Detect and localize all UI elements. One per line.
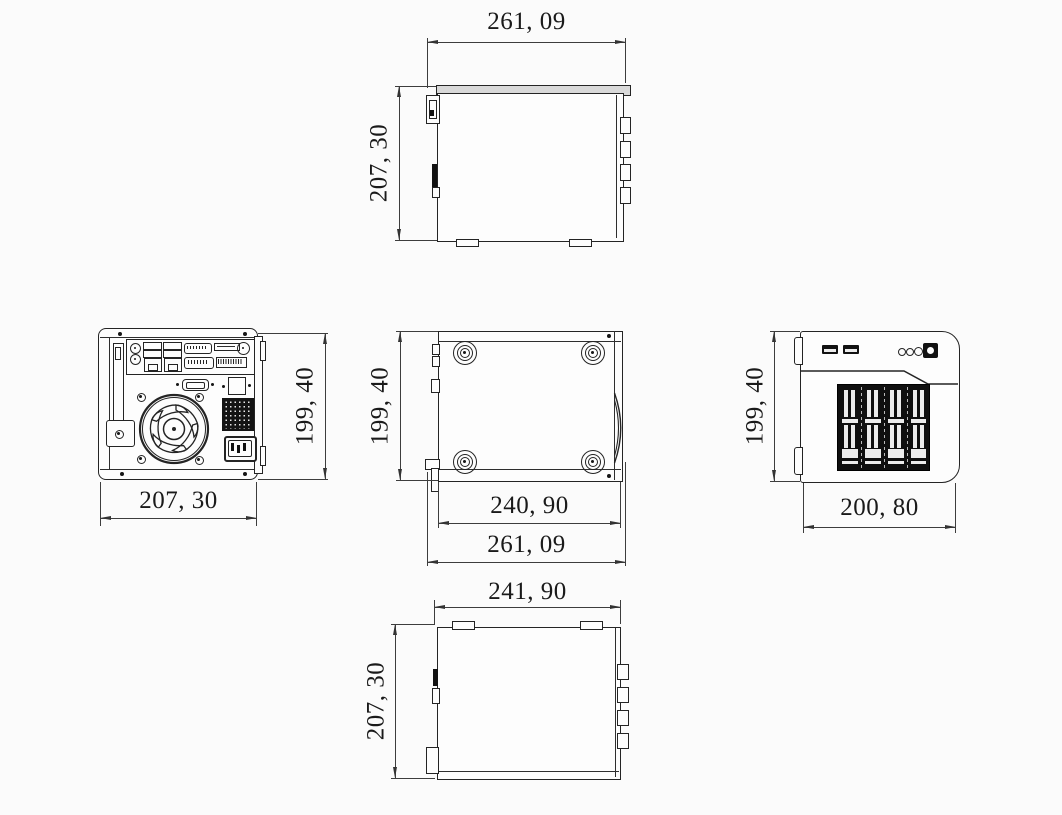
tray-latch [888, 461, 904, 464]
rear-connector-bump [431, 379, 440, 393]
panel-fold-line [109, 337, 110, 470]
power-button-symbol [927, 347, 934, 354]
usb-port [143, 342, 162, 350]
side-connector [433, 669, 438, 686]
arrowhead [803, 525, 814, 529]
tray-divider [865, 419, 881, 423]
tray-separator [884, 387, 885, 468]
dim-label-side-bottom-width: 241, 90 [434, 578, 621, 607]
extension-line [434, 600, 435, 624]
tray-vent-slot [851, 425, 855, 448]
front-bezel-line [616, 95, 617, 238]
extension-line [391, 778, 435, 779]
dim-label-side-top-width: 261, 09 [427, 8, 626, 37]
panel-fold-line [100, 337, 254, 338]
tray-vent-slot [844, 390, 848, 417]
dim-label-side-top-height: 207, 30 [366, 124, 395, 203]
dim-label-front-height: 199, 40 [742, 367, 771, 446]
tray-latch-bump [617, 687, 629, 703]
arrowhead [427, 40, 438, 44]
screw-hole [176, 383, 179, 386]
dimension-line [400, 331, 401, 480]
usb-port [163, 350, 182, 358]
tray-handle[interactable] [842, 449, 858, 458]
dimension-line [434, 607, 621, 608]
extension-line [625, 462, 626, 566]
ac-pin [243, 443, 246, 451]
extension-line [620, 600, 621, 624]
fan-screw [137, 393, 144, 400]
system-fan [138, 393, 210, 465]
arrowhead [610, 521, 621, 525]
tray-latch-bump [620, 187, 631, 204]
front-door-curve [613, 392, 629, 464]
extension-line [427, 472, 428, 566]
extension-line [258, 333, 328, 334]
rear-connector-bump [432, 356, 440, 367]
extension-line [396, 331, 438, 332]
drive-tray[interactable] [909, 387, 928, 468]
dim-label-front-width: 200, 80 [803, 494, 956, 523]
dimension-line [803, 527, 956, 528]
lan-port-tab [168, 364, 178, 371]
arrowhead [434, 605, 445, 609]
arrowhead [772, 331, 776, 342]
dimensional-drawing-canvas: { "views": { "side_top": { "dims": { "wi… [0, 0, 1062, 810]
front-usb-slot [845, 349, 857, 352]
side-view-top: 261, 09 207, 30 [370, 0, 670, 260]
arrowhead [615, 560, 626, 564]
side-panel-tab [260, 446, 266, 466]
tray-handle[interactable] [865, 449, 881, 458]
bracket-screw [115, 430, 122, 437]
rear-latch-detail [430, 110, 434, 116]
slim-connector-slot [217, 346, 235, 347]
dim-label-bottom-height: 199, 40 [367, 367, 396, 446]
tray-latch-bump [620, 164, 631, 181]
ac-pin [237, 445, 240, 453]
tray-divider [842, 419, 858, 423]
dimension-line [427, 42, 626, 43]
chassis-body [437, 93, 624, 242]
arrowhead [246, 516, 257, 520]
screw-hole [222, 385, 225, 388]
arrowhead [438, 521, 449, 525]
fan-screw [195, 393, 202, 400]
chassis-foot [569, 239, 592, 247]
dim-label-bottom-outer-width: 261, 09 [427, 531, 626, 560]
serial-port-pins [187, 346, 207, 349]
dimension-line [774, 331, 775, 481]
chassis-foot [452, 621, 475, 630]
extension-line [396, 480, 438, 481]
side-view-bottom: 241, 90 207, 30 [370, 570, 660, 810]
tray-vent-slot [874, 390, 878, 417]
serial-port-pins [188, 360, 209, 364]
extension-line [391, 624, 435, 625]
ac-pin [231, 443, 234, 451]
panel-fold-line [100, 469, 254, 470]
audio-jack-pin [134, 347, 136, 349]
dimension-line [395, 624, 396, 778]
status-led [898, 348, 906, 356]
rear-view: 207, 30 199, 40 [90, 320, 340, 535]
front-usb-slot [824, 349, 836, 352]
tray-vent-slot [897, 390, 901, 417]
tray-separator [907, 387, 908, 468]
screw [118, 332, 122, 336]
rear-connector-bump [432, 344, 440, 355]
tray-divider [888, 419, 904, 423]
tray-vent-slot [874, 425, 878, 448]
tray-vent-slot [890, 425, 894, 448]
drive-tray[interactable] [886, 387, 906, 468]
psu-fan-grille [222, 398, 254, 431]
tray-latch-bump [617, 710, 629, 726]
dimension-line [325, 333, 326, 479]
tray-handle[interactable] [888, 449, 904, 458]
tray-latch-bump [620, 117, 631, 134]
tray-latch-bump [620, 141, 631, 158]
arrowhead [945, 525, 956, 529]
terminal-block-pins [218, 359, 243, 364]
screw [243, 332, 247, 336]
side-connector [432, 164, 437, 187]
side-panel-tab [260, 341, 266, 361]
screw-hole [211, 383, 214, 386]
tray-vent-slot [920, 390, 924, 417]
drive-tray[interactable] [840, 387, 860, 468]
front-view: 199, 40 200, 80 [740, 300, 1060, 540]
tray-vent-slot [890, 390, 894, 417]
screw [243, 472, 247, 476]
bottom-view: 199, 40 240, 90 261, 09 [380, 300, 660, 575]
arrowhead [398, 331, 402, 342]
arrowhead [323, 468, 327, 479]
extension-line [625, 38, 626, 83]
square-cutout [228, 377, 246, 395]
side-connector-detail [432, 187, 440, 198]
arrowhead [427, 560, 438, 564]
usb-port [143, 350, 162, 358]
chassis-body [437, 627, 621, 780]
tray-vent-slot [913, 390, 917, 417]
expansion-slot-notch [115, 347, 121, 360]
side-hinge-tab [794, 337, 803, 365]
tray-vent-slot [851, 390, 855, 417]
tray-vent-slot [920, 425, 924, 448]
tray-vent-slot [867, 425, 871, 448]
round-connector [237, 342, 250, 355]
dimension-line [100, 518, 257, 519]
side-hinge-tab [794, 447, 803, 475]
fan-screw [195, 456, 202, 463]
extension-line [258, 479, 328, 480]
dimension-line [427, 562, 626, 563]
screw [120, 472, 124, 476]
screw [607, 334, 611, 338]
arrowhead [323, 333, 327, 344]
dimension-line [438, 523, 621, 524]
dim-label-rear-height: 199, 40 [292, 367, 321, 446]
front-bezel-line [615, 628, 616, 777]
arrowhead [610, 605, 621, 609]
dim-label-bottom-inner-width: 240, 90 [438, 492, 621, 521]
dim-label-side-bottom-height: 207, 30 [363, 662, 392, 741]
dim-label-rear-width: 207, 30 [100, 487, 257, 516]
chassis-foot [580, 621, 603, 630]
side-connector-detail [432, 688, 440, 704]
tray-vent-slot [867, 390, 871, 417]
arrowhead [100, 516, 111, 520]
chassis-foot [456, 239, 479, 247]
rubber-foot [453, 450, 475, 472]
status-led [914, 347, 923, 356]
tray-latch [865, 461, 881, 464]
tray-divider [911, 419, 926, 423]
extension-line [427, 38, 428, 88]
tray-handle[interactable] [911, 449, 926, 458]
rubber-foot [581, 341, 603, 363]
tray-separator [861, 387, 862, 468]
audio-jack [130, 354, 141, 365]
tray-vent-slot [844, 425, 848, 448]
usb-port [163, 342, 182, 350]
bottom-cover-line [437, 771, 619, 772]
status-led [906, 348, 914, 356]
arrowhead [397, 229, 401, 240]
lan-port-tab [148, 364, 158, 371]
dimension-line [399, 86, 400, 240]
arrowhead [393, 624, 397, 635]
vga-port-inner [186, 382, 205, 389]
arrowhead [772, 470, 776, 481]
extension-line [770, 481, 800, 482]
extension-line [395, 240, 437, 241]
rubber-foot [453, 341, 475, 363]
arrowhead [615, 40, 626, 44]
arrowhead [393, 767, 397, 778]
drive-tray[interactable] [863, 387, 883, 468]
tray-vent-slot [913, 425, 917, 448]
extension-line [395, 86, 437, 87]
arrowhead [397, 86, 401, 97]
expansion-bracket-tab [426, 747, 439, 774]
screw [607, 474, 611, 478]
screw-hole [248, 384, 251, 387]
arrowhead [398, 469, 402, 480]
tray-latch [842, 461, 858, 464]
tray-latch-bump [617, 664, 629, 680]
drive-bay-frame [837, 384, 930, 471]
round-connector-pin [242, 347, 244, 349]
audio-jack-pin [134, 358, 136, 360]
fan-screw [137, 455, 144, 462]
rubber-foot [581, 450, 603, 472]
tray-latch [911, 461, 926, 464]
tray-vent-slot [897, 425, 901, 448]
audio-jack [130, 343, 141, 354]
tray-latch-bump [617, 733, 629, 749]
